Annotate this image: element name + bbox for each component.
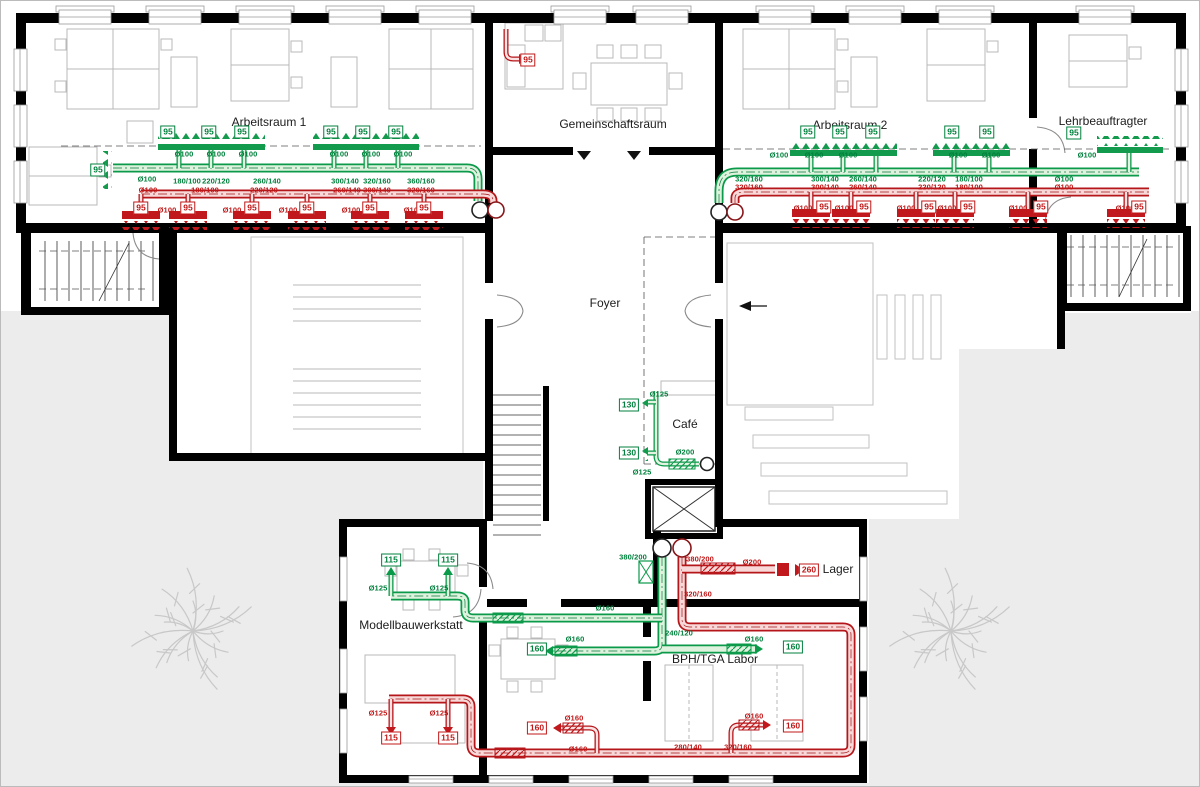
floor-plan-drawing (1, 1, 1200, 787)
floor-plan: Arbeitsraum 1 Gemeinschaftsraum Arbeitsr… (0, 0, 1200, 787)
elevator (653, 487, 715, 531)
